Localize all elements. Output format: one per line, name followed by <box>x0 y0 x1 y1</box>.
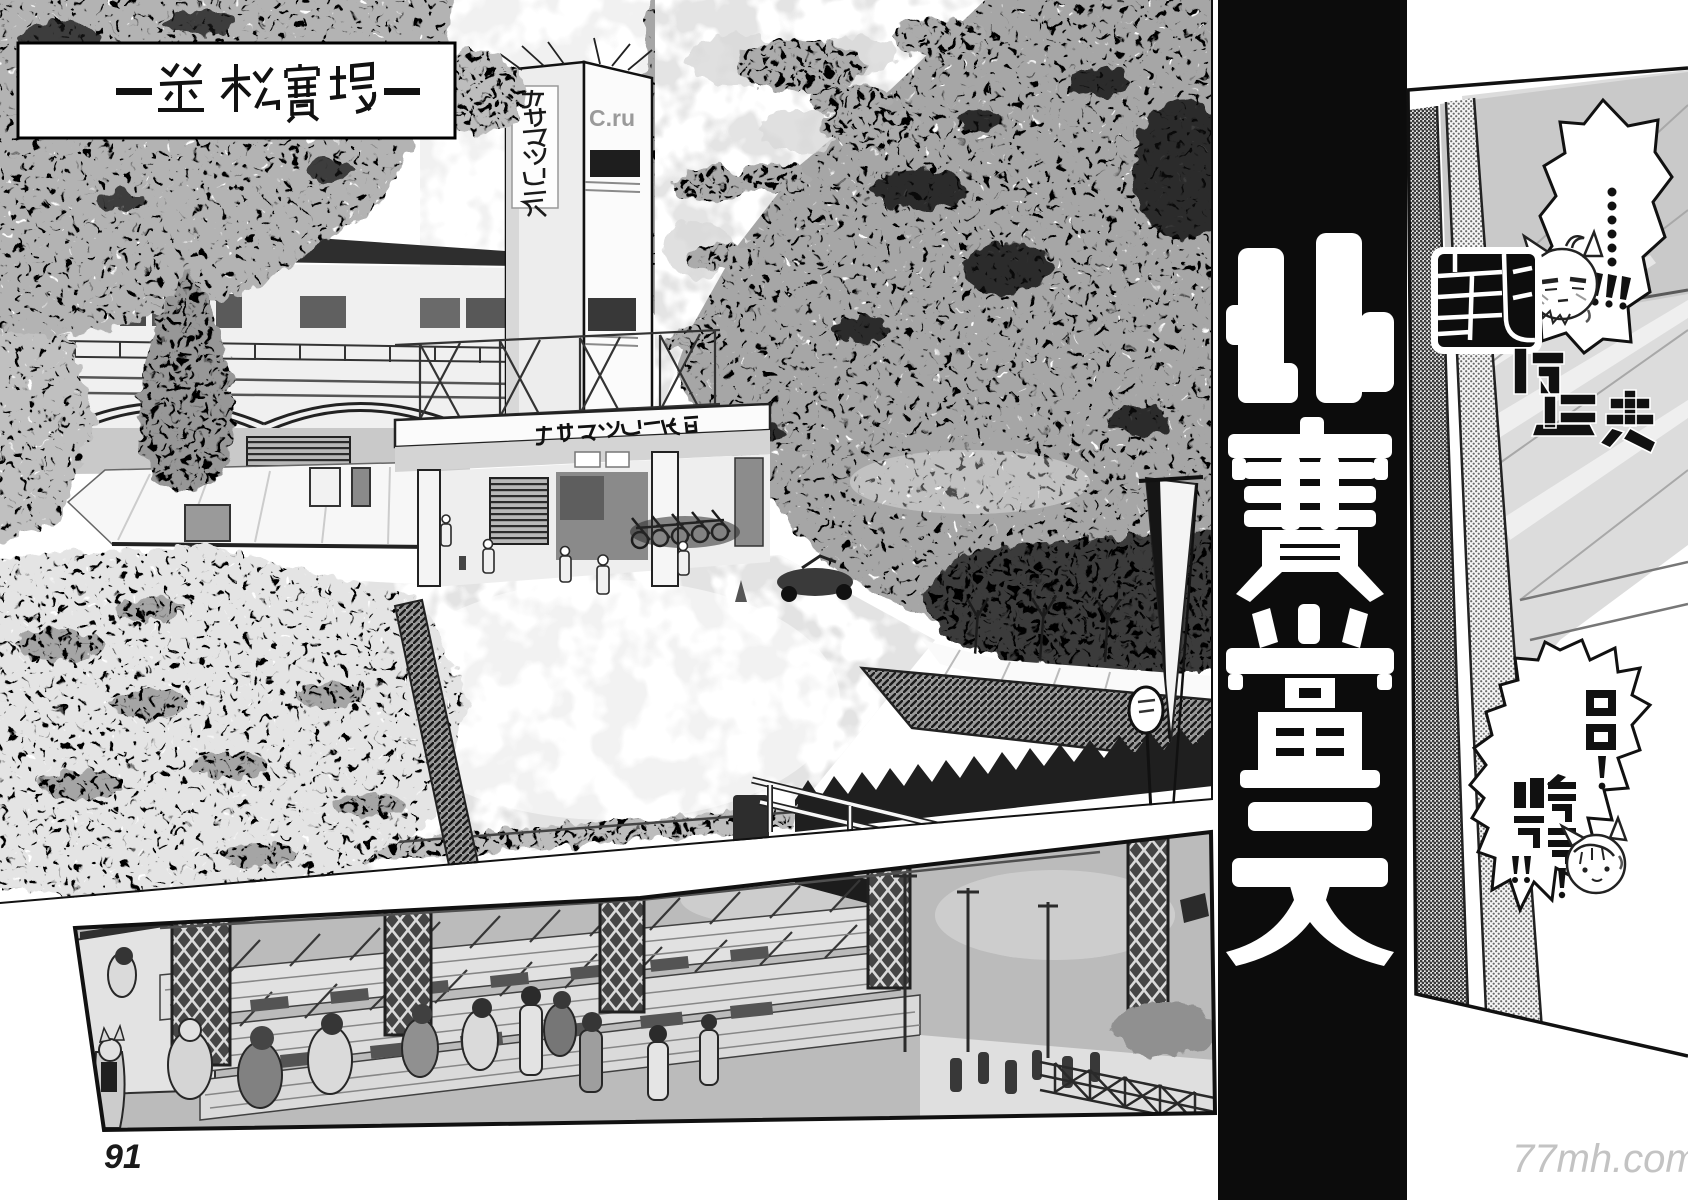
svg-text:91: 91 <box>104 1138 142 1176</box>
svg-text:C.ru: C.ru <box>589 105 635 131</box>
svg-text:77mh.com: 77mh.com <box>1512 1137 1688 1181</box>
